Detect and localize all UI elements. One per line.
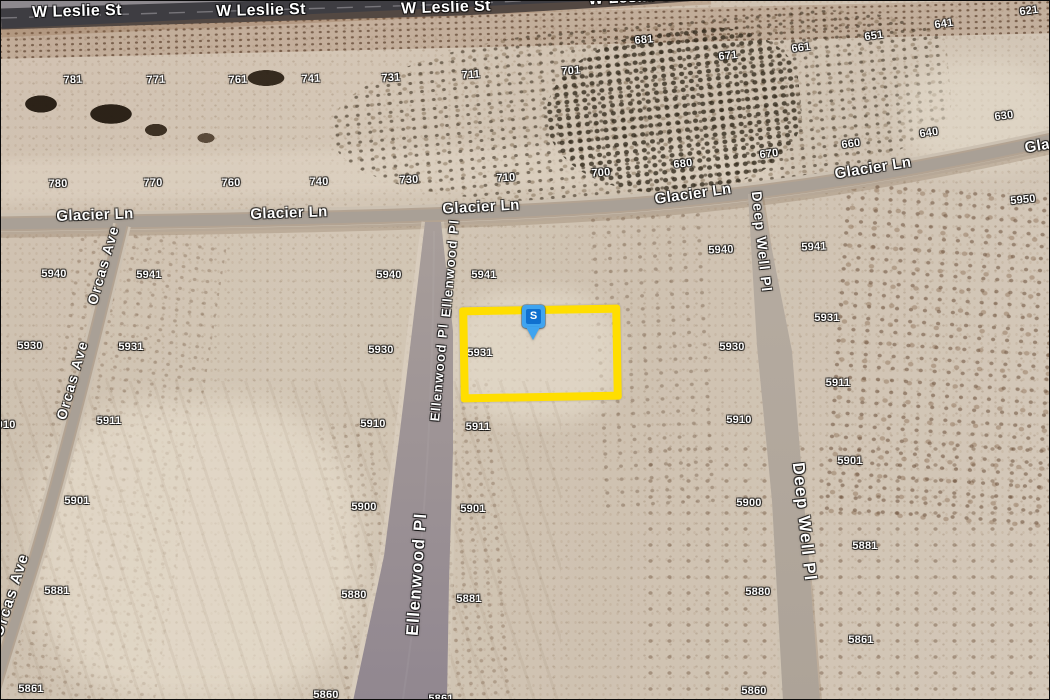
parcel-number-label: 670 bbox=[759, 147, 779, 161]
street-label: Glacier Ln bbox=[833, 154, 912, 183]
road-shoulder bbox=[1, 149, 1050, 235]
road-shoulder bbox=[440, 222, 451, 700]
parcel-number-label: 5930 bbox=[17, 340, 42, 352]
street-label: Orcas Ave bbox=[0, 551, 32, 639]
street-label: Orcas Ave bbox=[84, 224, 122, 307]
road-deep-well-pl bbox=[748, 194, 820, 700]
parcel-number-label: 5950 bbox=[1010, 193, 1036, 208]
street-label: Glacier Ln bbox=[654, 180, 733, 208]
parcel-number-label: 5941 bbox=[136, 269, 161, 281]
parcel-number-label: 660 bbox=[841, 137, 861, 152]
parcel-number-label: 641 bbox=[934, 17, 954, 32]
street-label: Glacier Ln bbox=[1023, 128, 1050, 157]
parcel-number-label: 661 bbox=[791, 41, 811, 55]
parcel-number-label: 700 bbox=[591, 166, 611, 179]
vegetation-patch bbox=[1, 56, 341, 151]
road-orcas-ave bbox=[1, 225, 122, 700]
parcel-number-label: 711 bbox=[461, 68, 480, 81]
parcel-number-label: 5940 bbox=[708, 244, 734, 257]
vegetation-patch bbox=[325, 0, 958, 225]
road-shoulder bbox=[761, 197, 819, 700]
parcel-number-label: 5901 bbox=[837, 455, 862, 467]
parcel-number-label: 5941 bbox=[801, 241, 827, 254]
parcel-number-label: 5910 bbox=[360, 418, 385, 430]
street-label: Glacier Ln bbox=[56, 205, 134, 225]
terrain-texture bbox=[820, 179, 1050, 529]
parcel-number-label: 5930 bbox=[719, 341, 744, 353]
parcel-number-label: 5860 bbox=[313, 689, 338, 700]
parcel-number-label: 771 bbox=[146, 74, 165, 87]
parcel-number-label: 681 bbox=[634, 33, 654, 47]
vegetation-patch bbox=[538, 18, 809, 206]
terrain-texture bbox=[5, 222, 227, 700]
parcel-number-label: 770 bbox=[143, 177, 162, 189]
parcel-number-label: 740 bbox=[309, 176, 328, 188]
parcel-number-label: 5910 bbox=[726, 414, 751, 426]
road-orcas-ave bbox=[1, 225, 122, 700]
parcel-number-label: 5911 bbox=[826, 377, 851, 389]
parcel-number-label: 5940 bbox=[376, 269, 401, 281]
parcel-number-label: 5911 bbox=[466, 421, 491, 433]
street-label: W Leslie St bbox=[216, 1, 306, 21]
road-centerline bbox=[403, 231, 434, 699]
terrain-texture bbox=[1, 381, 561, 700]
road-centerline bbox=[1, 1, 711, 18]
parcel-number-label: 5880 bbox=[341, 589, 366, 601]
terrain-texture bbox=[315, 419, 402, 700]
parcel-number-label: 760 bbox=[221, 177, 240, 189]
street-label: W Leslie St bbox=[32, 2, 122, 22]
road-shoulder bbox=[353, 222, 426, 700]
parcel-number-label: 5861 bbox=[428, 693, 453, 700]
road-orcas-ave bbox=[1, 225, 122, 700]
road-w-leslie-st bbox=[1, 1, 711, 19]
parcel-number-label: 730 bbox=[399, 174, 418, 187]
street-label: W Leslie St bbox=[588, 0, 679, 9]
parcel-number-label: 780 bbox=[48, 178, 67, 190]
road-shoulder bbox=[1, 1, 711, 33]
road-shoulder bbox=[754, 194, 783, 700]
parcel-number-label: 5861 bbox=[848, 634, 873, 646]
parcel-number-label: 671 bbox=[718, 49, 738, 63]
terrain-texture bbox=[420, 379, 512, 700]
road-ellenwood-pl bbox=[353, 222, 453, 700]
parcel-number-label: 761 bbox=[228, 74, 247, 87]
street-label: Ellenwood Pl bbox=[427, 322, 451, 422]
terrain-texture bbox=[31, 401, 361, 700]
marker-pointer-icon bbox=[526, 327, 540, 340]
parcel-number-label: 701 bbox=[561, 64, 581, 77]
parcel-number-label: 5881 bbox=[44, 585, 69, 597]
road-glacier-ln bbox=[1, 138, 1050, 224]
map-marker[interactable]: S bbox=[522, 305, 545, 328]
parcel-number-label: 5901 bbox=[64, 495, 89, 507]
parcel-number-label: 5931 bbox=[118, 341, 143, 353]
street-label: Deep Well Pl bbox=[788, 461, 820, 582]
parcel-number-label: 5881 bbox=[456, 593, 481, 605]
road-glacier-ln bbox=[1, 138, 1050, 224]
parcel-number-label: 5910 bbox=[0, 419, 16, 431]
marker-badge: S bbox=[526, 309, 541, 324]
parcel-number-label: 5940 bbox=[41, 268, 66, 280]
terrain-texture bbox=[0, 0, 1050, 59]
parcel-number-label: 5941 bbox=[471, 269, 496, 281]
parcel-number-label: 5881 bbox=[852, 540, 877, 552]
street-label: Ellenwood Pl bbox=[403, 512, 432, 637]
satellite-map[interactable]: S W Leslie StW Leslie StW Leslie StW Les… bbox=[0, 0, 1050, 700]
street-label: Glacier Ln bbox=[250, 203, 328, 223]
street-label: Ellenwood Pl bbox=[438, 218, 462, 318]
road-w-leslie-st bbox=[1, 1, 481, 4]
parcel-number-label: 5901 bbox=[460, 503, 485, 515]
parcel-number-label: 5880 bbox=[745, 586, 770, 598]
street-label: Glacier Ln bbox=[442, 196, 520, 217]
parcel-number-label: 781 bbox=[63, 74, 82, 87]
parcel-number-label: 630 bbox=[994, 109, 1014, 123]
street-label: Orcas Ave bbox=[53, 339, 91, 422]
parcel-number-label: 5930 bbox=[368, 344, 393, 356]
parcel-number-label: 5861 bbox=[18, 683, 43, 695]
street-label: Deep Well Pl bbox=[749, 191, 776, 294]
terrain-texture bbox=[901, 59, 1050, 169]
parcel-number-label: 651 bbox=[864, 29, 884, 44]
parcel-number-label: 731 bbox=[381, 72, 401, 85]
parcel-number-label: 680 bbox=[673, 157, 693, 171]
parcel-number-label: 5900 bbox=[351, 501, 376, 513]
parcel-number-label: 710 bbox=[496, 172, 516, 185]
road-glacier-ln bbox=[1, 138, 1050, 224]
parcel-number-label: 5900 bbox=[736, 497, 761, 509]
parcel-number-label: 5931 bbox=[814, 312, 839, 324]
parcel-number-label: 621 bbox=[1019, 4, 1039, 19]
parcel-number-label: 640 bbox=[919, 126, 939, 141]
parcel-number-label: 5860 bbox=[741, 685, 766, 697]
terrain-texture bbox=[641, 441, 1050, 700]
street-label: W Leslie St bbox=[401, 0, 491, 19]
parcel-number-label: 741 bbox=[301, 73, 320, 86]
parcel-number-label: 5911 bbox=[97, 415, 122, 427]
terrain-texture bbox=[1, 139, 782, 203]
